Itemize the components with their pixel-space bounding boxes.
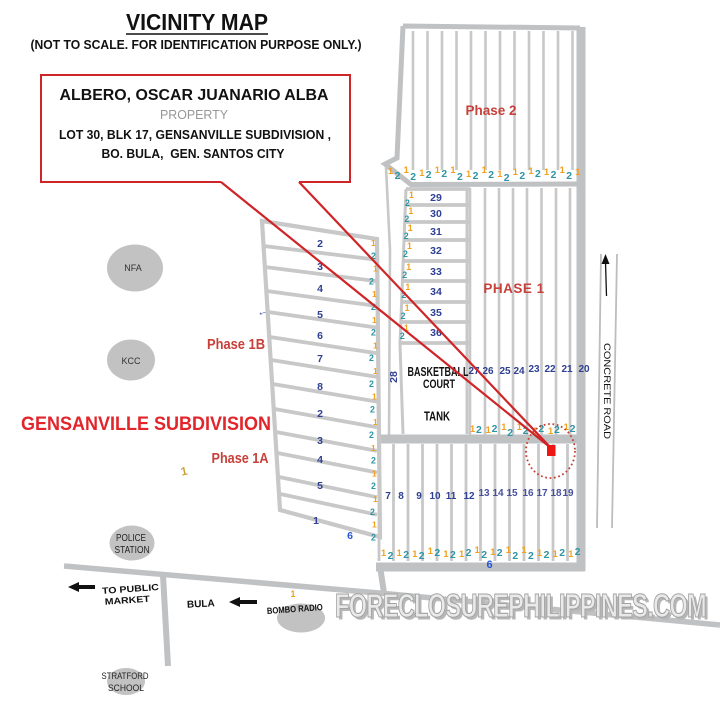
svg-text:POLICE: POLICE xyxy=(116,533,146,544)
svg-text:2: 2 xyxy=(419,551,425,562)
svg-text:1: 1 xyxy=(528,166,533,176)
svg-text:1: 1 xyxy=(568,549,573,559)
svg-text:21: 21 xyxy=(561,364,573,375)
svg-text:22: 22 xyxy=(544,364,556,375)
svg-text:7: 7 xyxy=(385,491,391,502)
svg-text:2: 2 xyxy=(441,169,447,180)
svg-text:32: 32 xyxy=(430,245,442,257)
svg-text:Phase 2: Phase 2 xyxy=(465,103,516,118)
svg-text:2: 2 xyxy=(401,311,406,321)
svg-text:1: 1 xyxy=(404,165,409,175)
svg-text:2: 2 xyxy=(473,171,479,182)
svg-text:1: 1 xyxy=(564,422,569,432)
svg-text:1: 1 xyxy=(466,169,471,179)
svg-text:COURT: COURT xyxy=(423,377,455,391)
svg-text:2: 2 xyxy=(317,238,323,250)
svg-text:17: 17 xyxy=(536,488,548,499)
svg-text:2: 2 xyxy=(388,551,394,562)
svg-text:24: 24 xyxy=(513,366,525,377)
svg-text:10: 10 xyxy=(429,491,441,502)
svg-text:1: 1 xyxy=(450,165,455,175)
svg-text:1: 1 xyxy=(371,238,376,248)
svg-text:1: 1 xyxy=(372,468,377,478)
svg-text:GENSANVILLE SUBDIVISION: GENSANVILLE SUBDIVISION xyxy=(21,414,271,435)
svg-text:2: 2 xyxy=(551,170,557,181)
svg-text:1: 1 xyxy=(475,545,480,555)
svg-text:33: 33 xyxy=(430,266,442,278)
svg-text:4: 4 xyxy=(317,283,323,295)
svg-text:1: 1 xyxy=(373,366,378,376)
svg-text:2: 2 xyxy=(507,428,513,439)
svg-text:MARKET: MARKET xyxy=(104,594,150,607)
svg-text:7: 7 xyxy=(317,353,323,365)
svg-text:2: 2 xyxy=(371,532,376,542)
svg-text:1: 1 xyxy=(373,340,378,350)
svg-text:5: 5 xyxy=(317,309,323,321)
svg-text:2: 2 xyxy=(544,550,550,561)
svg-text:6: 6 xyxy=(486,559,492,571)
svg-text:2: 2 xyxy=(566,171,572,182)
svg-text:2: 2 xyxy=(371,481,376,491)
svg-text:1: 1 xyxy=(501,422,506,432)
svg-text:2: 2 xyxy=(371,328,376,338)
svg-text:2: 2 xyxy=(504,173,510,184)
svg-text:2: 2 xyxy=(369,353,374,363)
svg-text:2: 2 xyxy=(369,430,374,440)
svg-text:1: 1 xyxy=(372,315,377,325)
svg-text:TO PUBLIC: TO PUBLIC xyxy=(102,582,160,596)
svg-text:1: 1 xyxy=(482,165,487,175)
svg-text:35: 35 xyxy=(430,307,442,319)
svg-text:2: 2 xyxy=(404,231,409,241)
svg-text:12: 12 xyxy=(463,491,475,502)
svg-text:ALBERO, OSCAR JUANARIO ALBA: ALBERO, OSCAR JUANARIO ALBA xyxy=(60,87,329,104)
svg-text:34: 34 xyxy=(430,286,442,298)
svg-text:5: 5 xyxy=(317,480,323,492)
svg-text:2: 2 xyxy=(370,507,375,517)
svg-text:2: 2 xyxy=(370,404,375,414)
svg-text:1: 1 xyxy=(428,546,433,556)
svg-text:25: 25 xyxy=(499,366,511,377)
svg-text:2: 2 xyxy=(410,172,416,183)
svg-text:2: 2 xyxy=(450,550,456,561)
svg-text:14: 14 xyxy=(492,488,504,499)
svg-text:1: 1 xyxy=(412,549,417,559)
svg-text:15: 15 xyxy=(506,488,518,499)
svg-text:1: 1 xyxy=(419,168,424,178)
svg-text:2: 2 xyxy=(369,276,374,286)
svg-text:26: 26 xyxy=(482,366,494,377)
svg-text:1: 1 xyxy=(381,548,386,558)
svg-text:13: 13 xyxy=(478,488,490,499)
svg-text:1: 1 xyxy=(490,547,495,557)
svg-text:1: 1 xyxy=(544,167,549,177)
svg-text:1: 1 xyxy=(506,545,511,555)
svg-text:CONCRETE ROAD: CONCRETE ROAD xyxy=(601,343,612,439)
svg-text:2: 2 xyxy=(317,408,323,420)
svg-text:SCHOOL: SCHOOL xyxy=(108,683,144,694)
svg-text:2: 2 xyxy=(535,169,541,180)
svg-text:Phase 1A: Phase 1A xyxy=(212,451,269,467)
svg-text:6: 6 xyxy=(347,530,353,542)
svg-text:NFA: NFA xyxy=(124,263,142,273)
svg-text:23: 23 xyxy=(528,364,540,375)
svg-text:STRATFORD: STRATFORD xyxy=(102,671,149,682)
svg-text:36: 36 xyxy=(430,327,442,339)
svg-text:2: 2 xyxy=(395,171,401,182)
svg-text:8: 8 xyxy=(317,381,323,393)
svg-text:18: 18 xyxy=(550,488,562,499)
svg-text:TANK: TANK xyxy=(424,410,450,424)
svg-text:30: 30 xyxy=(430,208,442,220)
svg-text:1: 1 xyxy=(443,549,448,559)
svg-text:Phase 1B: Phase 1B xyxy=(207,337,265,353)
svg-text:1: 1 xyxy=(553,549,558,559)
svg-text:2: 2 xyxy=(457,172,463,183)
svg-text:2: 2 xyxy=(371,456,376,466)
svg-text:1: 1 xyxy=(371,443,376,453)
svg-text:2: 2 xyxy=(403,249,408,259)
svg-text:1: 1 xyxy=(313,515,319,527)
svg-text:1: 1 xyxy=(470,424,475,434)
svg-text:2: 2 xyxy=(554,425,560,436)
svg-text:VICINITY MAP: VICINITY MAP xyxy=(126,9,268,35)
svg-text:STATION: STATION xyxy=(115,545,150,556)
svg-text:2: 2 xyxy=(497,548,503,559)
svg-text:2: 2 xyxy=(559,548,565,559)
svg-text:8: 8 xyxy=(398,491,404,502)
svg-text:1: 1 xyxy=(372,289,377,299)
svg-text:20: 20 xyxy=(578,364,590,375)
svg-text:1: 1 xyxy=(435,165,440,175)
svg-text:PHASE 1: PHASE 1 xyxy=(483,281,544,296)
svg-text:2: 2 xyxy=(369,379,374,389)
svg-text:31: 31 xyxy=(430,226,442,238)
svg-text:3: 3 xyxy=(317,435,323,447)
svg-text:6: 6 xyxy=(317,330,323,342)
svg-text:1: 1 xyxy=(548,426,553,436)
svg-text:1: 1 xyxy=(388,166,393,176)
svg-text:1: 1 xyxy=(290,589,295,599)
svg-text:1: 1 xyxy=(537,548,542,558)
svg-text:1: 1 xyxy=(373,494,378,504)
svg-text:1: 1 xyxy=(560,165,565,175)
svg-text:2: 2 xyxy=(519,171,525,182)
svg-text:2: 2 xyxy=(426,170,432,181)
svg-text:28: 28 xyxy=(388,371,400,383)
svg-text:BO. BULA, GEN. SANTOS CITY: BO. BULA, GEN. SANTOS CITY xyxy=(102,146,285,161)
svg-text:19: 19 xyxy=(562,488,574,499)
svg-text:1: 1 xyxy=(575,167,580,177)
svg-text:1: 1 xyxy=(497,169,502,179)
svg-text:2: 2 xyxy=(400,331,405,341)
svg-text:11: 11 xyxy=(446,491,457,502)
svg-text:BULA: BULA xyxy=(187,598,215,610)
svg-text:1: 1 xyxy=(372,520,377,530)
svg-text:29: 29 xyxy=(430,192,442,204)
svg-text:(NOT TO SCALE. FOR IDENTIFICAT: (NOT TO SCALE. FOR IDENTIFICATION PURPOS… xyxy=(31,37,362,52)
svg-text:LOT 30, BLK 17, GENSANVILLE SU: LOT 30, BLK 17, GENSANVILLE SUBDIVISION … xyxy=(59,127,331,142)
svg-text:KCC: KCC xyxy=(121,356,141,366)
svg-text:2: 2 xyxy=(512,551,518,562)
svg-text:2: 2 xyxy=(488,170,494,181)
svg-text:FORECLOSUREPHILIPPINES.COM: FORECLOSUREPHILIPPINES.COM xyxy=(335,587,706,624)
svg-text:2: 2 xyxy=(466,548,472,559)
svg-text:2: 2 xyxy=(403,550,409,561)
svg-text:1: 1 xyxy=(397,548,402,558)
svg-text:2: 2 xyxy=(528,551,534,562)
svg-text:1: 1 xyxy=(521,545,526,555)
svg-text:1: 1 xyxy=(486,425,491,435)
svg-text:1: 1 xyxy=(180,465,189,478)
svg-text:2: 2 xyxy=(402,270,407,280)
svg-text:2: 2 xyxy=(476,425,482,436)
svg-text:2: 2 xyxy=(570,424,576,435)
svg-text:16: 16 xyxy=(522,488,534,499)
svg-text:2: 2 xyxy=(575,547,581,558)
svg-text:PROPERTY: PROPERTY xyxy=(160,108,229,122)
svg-text:1: 1 xyxy=(513,167,518,177)
svg-text:4: 4 xyxy=(317,454,323,466)
svg-text:1: 1 xyxy=(373,417,378,427)
svg-text:9: 9 xyxy=(416,491,422,502)
svg-text:2: 2 xyxy=(434,548,440,559)
svg-text:1: 1 xyxy=(372,392,377,402)
svg-text:2: 2 xyxy=(492,424,498,435)
svg-text:1: 1 xyxy=(459,549,464,559)
